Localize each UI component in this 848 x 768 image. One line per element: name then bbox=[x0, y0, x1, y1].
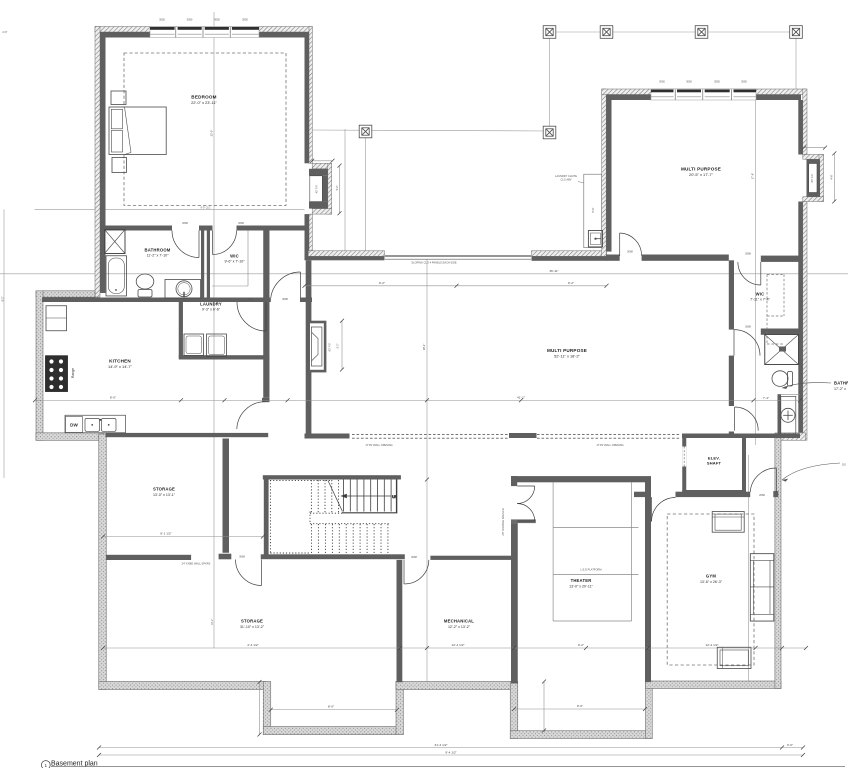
svg-text:MULTI PURPOSE: MULTI PURPOSE bbox=[547, 348, 587, 353]
svg-text:3050: 3050 bbox=[714, 80, 720, 84]
svg-text:9'-3" x 6'-6": 9'-3" x 6'-6" bbox=[202, 308, 221, 312]
svg-text:4'-6": 4'-6" bbox=[830, 174, 834, 179]
svg-text:2'-0": 2'-0" bbox=[3, 31, 8, 34]
svg-text:13'-0" x 13'-1": 13'-0" x 13'-1" bbox=[153, 493, 176, 497]
svg-text:41'-2": 41'-2" bbox=[517, 396, 525, 400]
svg-text:2668: 2668 bbox=[238, 221, 244, 225]
svg-text:17'X9' WALL OPENING: 17'X9' WALL OPENING bbox=[596, 443, 623, 447]
svg-text:2668: 2668 bbox=[745, 252, 751, 256]
svg-text:2668: 2668 bbox=[247, 297, 253, 301]
svg-text:3068: 3068 bbox=[282, 297, 288, 301]
svg-text:12'-4 1/2": 12'-4 1/2" bbox=[451, 643, 464, 647]
svg-text:12'-4 1/2": 12'-4 1/2" bbox=[705, 643, 718, 647]
svg-text:3068: 3068 bbox=[411, 555, 417, 559]
svg-text:8'-0": 8'-0" bbox=[328, 705, 334, 709]
svg-text:3050: 3050 bbox=[214, 18, 220, 22]
svg-text:7'-4": 7'-4" bbox=[763, 396, 769, 400]
svg-text:WIC: WIC bbox=[230, 254, 239, 259]
svg-text:31'-10" x 13'-2": 31'-10" x 13'-2" bbox=[240, 625, 265, 629]
svg-text:9'-6" x 7'-10": 9'-6" x 7'-10" bbox=[224, 260, 245, 264]
svg-text:13'-0" x 20'-11": 13'-0" x 20'-11" bbox=[569, 584, 594, 588]
svg-text:9'-2": 9'-2" bbox=[578, 643, 584, 647]
svg-text:7'-11" x 7'-4": 7'-11" x 7'-4" bbox=[750, 298, 771, 302]
svg-text:LAUNDRY CHUTE: LAUNDRY CHUTE bbox=[555, 174, 577, 178]
svg-text:2'6" DOUBLE FRENCH: 2'6" DOUBLE FRENCH bbox=[501, 508, 505, 535]
svg-text:13'-6" x 26'-3": 13'-6" x 26'-3" bbox=[700, 580, 723, 584]
svg-text:8'-1 1/2": 8'-1 1/2" bbox=[160, 532, 171, 536]
svg-text:1: 1 bbox=[45, 763, 48, 768]
svg-text:60" F.P.: 60" F.P. bbox=[810, 173, 814, 182]
svg-text:LAUNDRY: LAUNDRY bbox=[200, 302, 222, 307]
svg-text:DW: DW bbox=[70, 423, 78, 428]
svg-text:3068: 3068 bbox=[239, 555, 245, 559]
svg-text:BEDROOM: BEDROOM bbox=[191, 95, 216, 100]
svg-text:Range: Range bbox=[71, 368, 75, 378]
svg-text:20'-5" x 17'-7": 20'-5" x 17'-7" bbox=[689, 172, 714, 177]
svg-text:2'-4 1/2": 2'-4 1/2" bbox=[247, 643, 258, 647]
svg-text:3050: 3050 bbox=[242, 18, 248, 22]
svg-text:WIC: WIC bbox=[756, 292, 765, 297]
svg-text:3050: 3050 bbox=[187, 18, 193, 22]
svg-text:17'-2" x: 17'-2" x bbox=[834, 387, 846, 391]
svg-text:9'-2": 9'-2" bbox=[379, 281, 385, 285]
svg-text:SHAFT: SHAFT bbox=[707, 461, 722, 466]
svg-text:36'-11": 36'-11" bbox=[549, 269, 558, 273]
svg-text:2668: 2668 bbox=[182, 221, 188, 225]
svg-text:9'-0": 9'-0" bbox=[591, 207, 595, 212]
svg-text:THEATER: THEATER bbox=[571, 578, 592, 583]
svg-text:13'-1": 13'-1" bbox=[211, 619, 214, 625]
svg-text:CLG ABV: CLG ABV bbox=[560, 178, 571, 182]
svg-text:11'-2" x 7'-10": 11'-2" x 7'-10" bbox=[147, 254, 170, 258]
svg-text:STORAGE: STORAGE bbox=[241, 619, 263, 624]
svg-text:3050: 3050 bbox=[159, 18, 165, 22]
svg-text:KITCHEN: KITCHEN bbox=[109, 359, 131, 364]
svg-text:L.E.D PLATFORM: L.E.D PLATFORM bbox=[580, 568, 601, 572]
svg-text:9'-0" CLG: 9'-0" CLG bbox=[201, 208, 211, 210]
svg-text:SLOPING CLG 4 PANELS EACH SIDE: SLOPING CLG 4 PANELS EACH SIDE bbox=[411, 260, 456, 264]
svg-text:63" F.P.: 63" F.P. bbox=[328, 342, 332, 351]
svg-text:42" F.P.: 42" F.P. bbox=[315, 184, 319, 193]
svg-text:9'-2": 9'-2" bbox=[568, 281, 574, 285]
svg-text:2668: 2668 bbox=[745, 325, 751, 329]
svg-text:3050: 3050 bbox=[659, 80, 665, 84]
svg-text:MECHANICAL: MECHANICAL bbox=[444, 619, 474, 624]
svg-text:BATHROOM: BATHROOM bbox=[145, 248, 171, 253]
svg-text:8'-2": 8'-2" bbox=[2, 296, 5, 301]
svg-text:12'-2" x 13'-2": 12'-2" x 13'-2" bbox=[448, 625, 471, 629]
svg-text:9'-0": 9'-0" bbox=[577, 704, 583, 708]
svg-text:9'-4 1/2": 9'-4 1/2" bbox=[445, 751, 456, 755]
svg-text:17'-6": 17'-6" bbox=[751, 173, 755, 180]
svg-text:24" KNEE WALL SPKRS: 24" KNEE WALL SPKRS bbox=[182, 562, 211, 566]
svg-text:18'-2": 18'-2" bbox=[422, 344, 426, 351]
svg-text:3'-0": 3'-0" bbox=[787, 743, 793, 747]
svg-text:3050: 3050 bbox=[741, 80, 747, 84]
svg-text:8'-0": 8'-0" bbox=[110, 396, 116, 400]
svg-text:5'-2": 5'-2" bbox=[337, 343, 340, 348]
svg-text:STORAGE: STORAGE bbox=[153, 487, 175, 492]
svg-text:22'-0" x 23'-11": 22'-0" x 23'-11" bbox=[191, 100, 217, 105]
svg-text:5'-2": 5'-2" bbox=[336, 185, 339, 190]
svg-text:BATHRO: BATHRO bbox=[834, 381, 848, 386]
svg-text:52'-11" x 18'-2": 52'-11" x 18'-2" bbox=[554, 354, 580, 359]
svg-text:17'X9' WALL OPENING: 17'X9' WALL OPENING bbox=[365, 443, 392, 447]
svg-text:22'-0": 22'-0" bbox=[210, 130, 214, 137]
svg-text:UP: UP bbox=[392, 495, 397, 499]
svg-text:14'-9" x 14'-7": 14'-9" x 14'-7" bbox=[108, 364, 133, 369]
svg-text:31'-4 1/2": 31'-4 1/2" bbox=[434, 743, 447, 747]
svg-text:DO: DO bbox=[842, 463, 846, 467]
svg-text:3068: 3068 bbox=[627, 250, 633, 254]
svg-text:3050: 3050 bbox=[686, 80, 692, 84]
svg-text:MULTI PURPOSE: MULTI PURPOSE bbox=[681, 167, 721, 172]
svg-text:GYM: GYM bbox=[706, 574, 716, 579]
svg-text:2668: 2668 bbox=[759, 493, 765, 497]
